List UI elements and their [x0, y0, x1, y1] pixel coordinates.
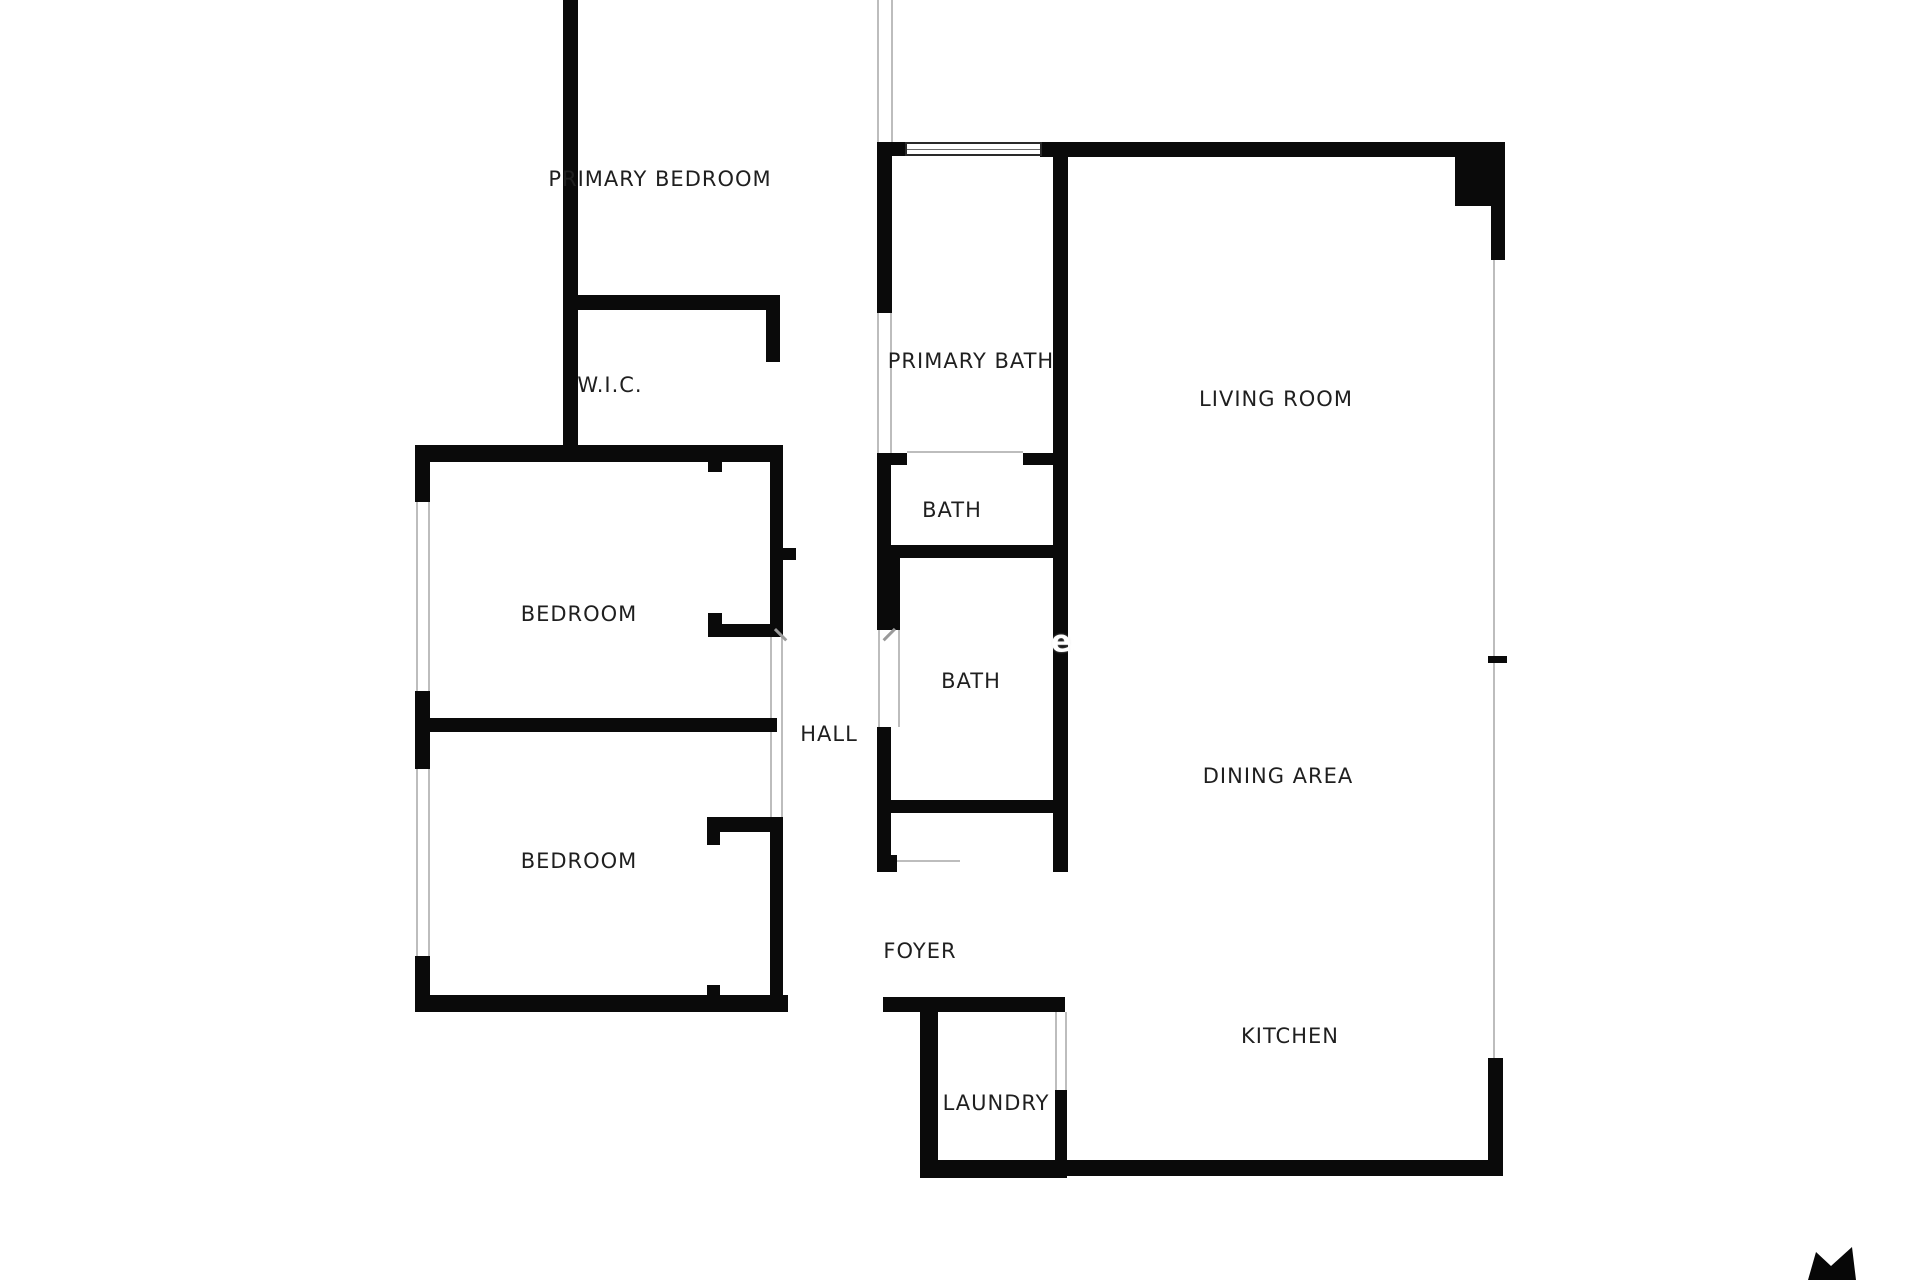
- thin-line: [907, 451, 1023, 453]
- room-label-foyer: FOYER: [883, 939, 956, 963]
- wall-segment: [877, 142, 907, 156]
- room-label-living-room: LIVING ROOM: [1199, 387, 1353, 411]
- thin-line: [877, 313, 879, 453]
- wall-segment: [877, 855, 897, 872]
- wall-segment: [877, 453, 891, 548]
- thin-line: [878, 630, 880, 727]
- wall-segment: [1023, 453, 1055, 465]
- thin-line: [891, 0, 893, 142]
- room-label-bath-lower: BATH: [941, 669, 1001, 693]
- wall-segment: [1055, 1090, 1067, 1178]
- wall-segment: [1488, 1058, 1503, 1176]
- wall-segment: [415, 995, 788, 1012]
- wall-segment: [877, 548, 900, 630]
- watermark: e: [1051, 625, 1071, 660]
- wall-segment: [415, 445, 783, 462]
- wall-segment: [708, 462, 722, 472]
- thin-line: [1493, 663, 1495, 1058]
- wall-segment: [877, 545, 1068, 558]
- thin-line: [877, 0, 879, 142]
- window-icon: [905, 142, 1042, 156]
- thin-line: [781, 637, 783, 817]
- wall-segment: [770, 448, 783, 637]
- floorplan-canvas: PRIMARY BEDROOMW.I.C.PRIMARY BATHLIVING …: [0, 0, 1920, 1280]
- room-label-bedroom-2: BEDROOM: [521, 849, 638, 873]
- thin-line: [897, 860, 960, 862]
- wall-segment: [770, 817, 783, 1012]
- wall-segment: [707, 985, 720, 1012]
- wall-segment: [707, 817, 720, 845]
- thin-line: [428, 502, 430, 691]
- wall-segment: [1488, 656, 1507, 663]
- room-label-wic: W.I.C.: [577, 373, 642, 397]
- thin-line: [416, 769, 418, 956]
- wall-segment: [920, 997, 938, 1178]
- wall-segment: [1455, 142, 1505, 206]
- wall-segment: [877, 142, 892, 313]
- wall-segment: [883, 997, 1065, 1012]
- wall-segment: [1053, 155, 1068, 872]
- wall-segment: [920, 1160, 1067, 1178]
- wall-segment: [563, 295, 780, 310]
- thin-line: [1065, 1012, 1067, 1090]
- wall-segment: [783, 548, 796, 560]
- room-label-bedroom-1: BEDROOM: [521, 602, 638, 626]
- wall-segment: [1067, 1160, 1503, 1176]
- thin-line: [428, 769, 430, 956]
- room-label-hall: HALL: [800, 722, 858, 746]
- room-label-primary-bath: PRIMARY BATH: [888, 349, 1054, 373]
- room-label-laundry: LAUNDRY: [943, 1091, 1050, 1115]
- thin-line: [1055, 1012, 1057, 1090]
- room-label-primary-bedroom: PRIMARY BEDROOM: [548, 167, 771, 191]
- wall-segment: [430, 718, 777, 732]
- brand-logo-icon: [1800, 1245, 1860, 1280]
- wall-segment: [1491, 206, 1505, 260]
- room-label-dining-area: DINING AREA: [1203, 764, 1354, 788]
- star-logo-shape: [1808, 1247, 1856, 1280]
- thin-line: [416, 502, 418, 691]
- wall-segment: [415, 445, 430, 502]
- wall-segment: [877, 800, 1068, 813]
- thin-line: [890, 313, 892, 453]
- room-label-kitchen: KITCHEN: [1241, 1024, 1339, 1048]
- wall-segment: [766, 295, 780, 362]
- window-pane-line: [907, 149, 1040, 150]
- wall-segment: [563, 0, 578, 455]
- room-label-bath-upper: BATH: [922, 498, 982, 522]
- wall-segment: [708, 624, 783, 637]
- wall-segment: [1040, 142, 1505, 157]
- thin-line: [898, 630, 900, 727]
- wall-segment: [415, 691, 430, 769]
- thin-line: [1493, 258, 1495, 657]
